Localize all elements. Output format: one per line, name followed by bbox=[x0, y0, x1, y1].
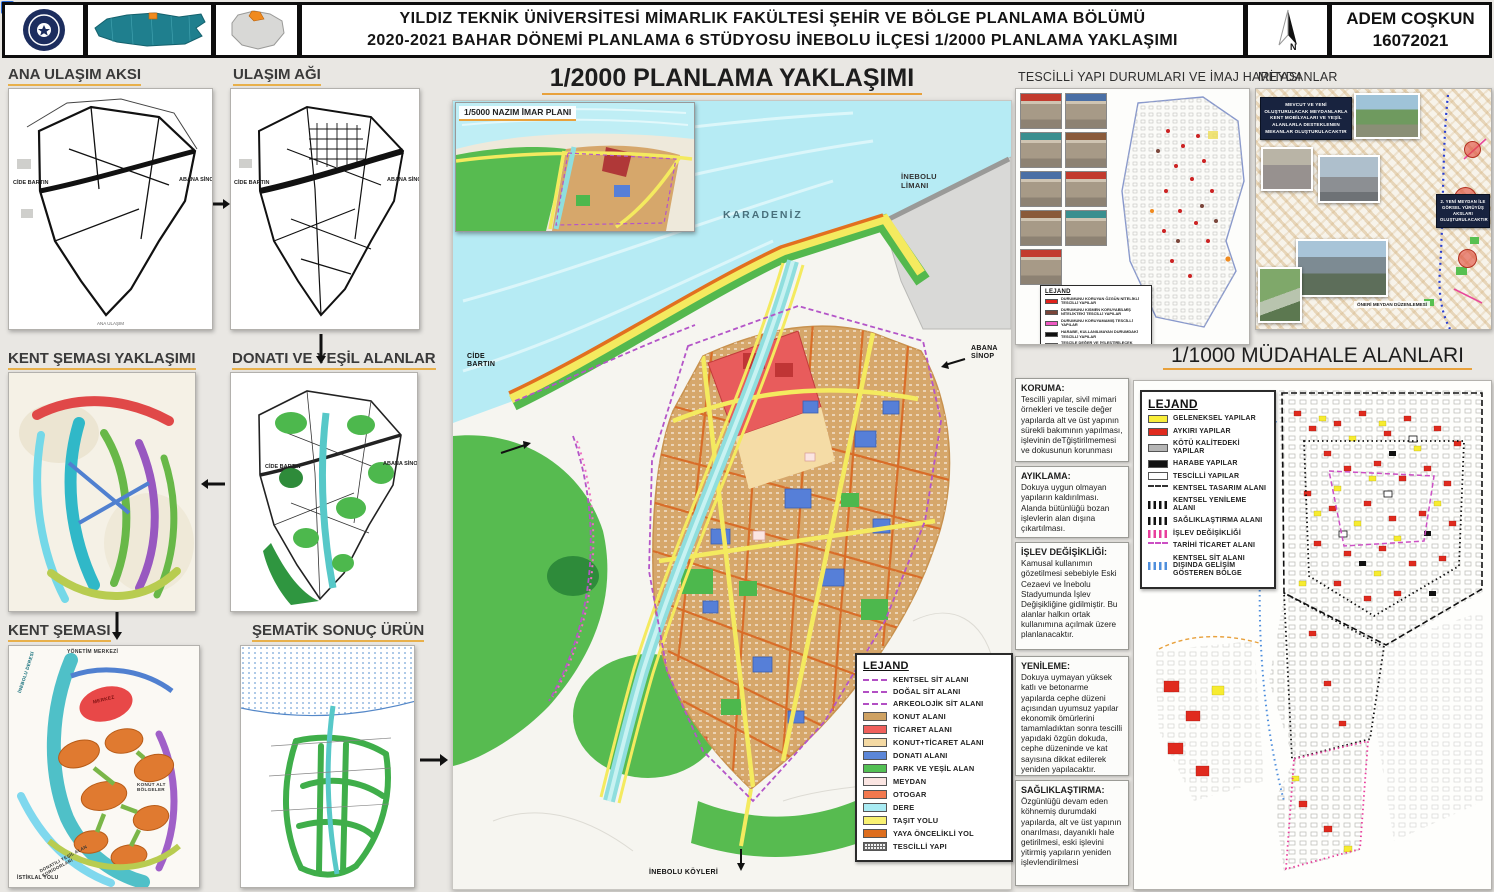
tescilli-photo bbox=[1065, 93, 1107, 129]
svg-text:CİDE BARTIN: CİDE BARTIN bbox=[265, 463, 300, 470]
mudahale-legend: LEJAND GELENEKSEL YAPILAR AYKIRI YAPILAR… bbox=[1140, 390, 1276, 589]
kent-semasi-note: YÖNETİM MERKEZİ bbox=[67, 650, 118, 656]
legend-swatch bbox=[1045, 310, 1058, 315]
legend-swatch bbox=[863, 829, 887, 838]
ana-ulasim-map-image: CİDE BARTIN ABANA SİNOP ANA ULAŞIM bbox=[9, 89, 213, 330]
tescilli-photo bbox=[1065, 210, 1107, 246]
legend-item: TAŞIT YOLU bbox=[863, 816, 1005, 825]
legend-item: KONUT+TİCARET ALANI bbox=[863, 738, 1005, 747]
legend-swatch bbox=[1148, 542, 1168, 550]
inset-map: 1/5000 NAZIM İMAR PLANI bbox=[455, 102, 695, 232]
legend-swatch bbox=[863, 777, 887, 786]
donati-yesil-map-image: CİDE BARTIN ABANA SİNOP bbox=[231, 373, 418, 612]
legend-item: GELENEKSEL YAPILAR bbox=[1148, 415, 1268, 423]
kent-semasi-note: İSTİKLAL YOLU bbox=[17, 876, 59, 882]
province-map-icon bbox=[224, 7, 290, 53]
legend-item: KENTSEL TASARIM ALANI bbox=[1148, 485, 1268, 493]
arrow-down-icon-2 bbox=[110, 612, 124, 642]
label-donati-ve-yesil: DONATI VE YEŞİL ALANLAR bbox=[232, 350, 436, 367]
west-label: CİDE BARTIN bbox=[467, 353, 501, 369]
panel-kent-semasi-yaklasimi bbox=[8, 372, 196, 612]
meydanlar-photo bbox=[1296, 239, 1388, 297]
label-sematik-sonuc: ŞEMATİK SONUÇ ÜRÜN bbox=[252, 622, 424, 639]
meydanlar-title: MEYDANLAR bbox=[1258, 70, 1338, 84]
legend-swatch bbox=[863, 703, 887, 705]
svg-text:ANA ULAŞIM: ANA ULAŞIM bbox=[97, 321, 124, 326]
legend-item: MEYDAN bbox=[863, 777, 1005, 786]
legend-title: LEJAND bbox=[863, 660, 1005, 672]
legend-swatch bbox=[863, 725, 887, 734]
legend-item: TESCİLE DEĞER VE İYİLEŞTİRİLECEK YAPILAR bbox=[1045, 341, 1147, 345]
kent-semasi-yaklasimi-image bbox=[9, 373, 196, 612]
legend-swatch bbox=[1148, 485, 1168, 493]
poster: YILDIZ TEKNİK ÜNİVERSİTESİ MİMARLIK FAKÜ… bbox=[0, 0, 1494, 892]
note-koruma: KORUMA:Tescilli yapılar, sivil mimari ör… bbox=[1015, 378, 1129, 462]
label-kent-semasi-yaklasimi: KENT ŞEMASI YAKLAŞIMI bbox=[8, 350, 196, 367]
legend-swatch bbox=[863, 691, 887, 693]
main-map-title: 1/2000 PLANLAMA YAKLAŞIMI bbox=[452, 64, 1012, 93]
note-ayiklama: AYIKLAMA:Dokuya uygun olmayan yapıların … bbox=[1015, 466, 1129, 538]
port-label: İNEBOLU LİMANI bbox=[901, 173, 953, 190]
svg-text:N: N bbox=[1290, 42, 1297, 52]
panel-sematik-sonuc bbox=[240, 645, 415, 888]
legend-swatch bbox=[863, 816, 887, 825]
legend-swatch bbox=[1148, 530, 1168, 538]
legend-item: DURUMUNU KORUYAN ÖZGÜN NİTELİKLİ TESCİLL… bbox=[1045, 297, 1147, 306]
ulasim-agi-map-image: CİDE BARTIN ABANA SİNOP bbox=[231, 89, 420, 330]
header-title-line2: 2020-2021 BAHAR DÖNEMİ PLANLAMA 6 STÜDYO… bbox=[367, 30, 1178, 52]
panel-ulasim-agi: CİDE BARTIN ABANA SİNOP bbox=[230, 88, 420, 330]
province-map-box bbox=[214, 2, 300, 58]
sea-label: KARADENİZ bbox=[723, 209, 803, 221]
north-arrow-icon: N bbox=[1271, 7, 1305, 53]
label-ana-ulasim-aksi: ANA ULAŞIM AKSI bbox=[8, 66, 141, 83]
legend-item: DOĞAL SİT ALANI bbox=[863, 688, 1005, 696]
tescilli-photo bbox=[1020, 171, 1062, 207]
legend-item: KÖTÜ KALİTEDEKİ YAPILAR bbox=[1148, 440, 1268, 455]
legend-swatch bbox=[1045, 343, 1058, 345]
legend-item: KENTSEL YENİLEME ALANI bbox=[1148, 497, 1268, 512]
meydanlar-note-top: MEVCUT VE YENİ OLUŞTURULACAK MEYDANLARLA… bbox=[1260, 97, 1352, 140]
legend-swatch bbox=[863, 803, 887, 812]
legend-swatch bbox=[1148, 428, 1168, 436]
legend-item: İŞLEV DEĞİŞİKLİĞİ bbox=[1148, 530, 1268, 538]
kent-semasi-image bbox=[9, 646, 200, 888]
south-label: İNEBOLU KÖYLERİ bbox=[649, 869, 718, 877]
header: YILDIZ TEKNİK ÜNİVERSİTESİ MİMARLIK FAKÜ… bbox=[2, 2, 1492, 58]
arrow-right-icon-2 bbox=[420, 752, 450, 768]
label-ulasim-agi: ULAŞIM AĞI bbox=[233, 66, 321, 83]
meydan-circle bbox=[1458, 249, 1477, 268]
legend-item: YAYA ÖNCELİKLİ YOL bbox=[863, 829, 1005, 838]
legend-swatch bbox=[1148, 501, 1168, 509]
legend-swatch bbox=[863, 712, 887, 721]
main-map-legend: LEJAND KENTSEL SİT ALANI DOĞAL SİT ALANI… bbox=[855, 653, 1013, 862]
inset-title: 1/5000 NAZIM İMAR PLANI bbox=[459, 106, 576, 121]
label-kent-semasi: KENT ŞEMASI bbox=[8, 622, 111, 639]
legend-item: SAĞLIKLAŞTIRMA ALANI bbox=[1148, 517, 1268, 525]
panel-tescilli: LEJAND DURUMUNU KORUYAN ÖZGÜN NİTELİKLİ … bbox=[1015, 88, 1250, 345]
meydanlar-caption: ÖNERİ MEYDAN DÜZENLEMESİ bbox=[1354, 301, 1430, 308]
legend-item: HARABE YAPILAR bbox=[1148, 460, 1268, 468]
legend-swatch bbox=[863, 751, 887, 760]
legend-swatch bbox=[863, 738, 887, 747]
svg-text:ABANA SİNOP: ABANA SİNOP bbox=[383, 460, 418, 467]
legend-swatch bbox=[1045, 321, 1058, 326]
mudahale-title: 1/1000 MÜDAHALE ALANLARI bbox=[1145, 344, 1490, 368]
legend-item: KENTSEL SİT ALANI DIŞINDA GELİŞİM GÖSTER… bbox=[1148, 555, 1268, 578]
meydanlar-note-right: 2. YENİ MEYDAN İLE GÖRSEL YÜRÜYÜŞ AKSLAR… bbox=[1436, 194, 1490, 228]
legend-item: KONUT ALANI bbox=[863, 712, 1005, 721]
ytu-logo-icon bbox=[21, 7, 67, 53]
arrow-down-icon bbox=[314, 334, 328, 366]
legend-item: DURUMUNU KORUYAMAMIŞ TESCİLLİ YAPILAR bbox=[1045, 319, 1147, 328]
legend-item: HARABE, KULLANILMAYAN DURUMDAKİ TESCİLLİ… bbox=[1045, 330, 1147, 339]
meydanlar-photo bbox=[1354, 93, 1420, 139]
legend-item: OTOGAR bbox=[863, 790, 1005, 799]
tescilli-photo bbox=[1020, 210, 1062, 246]
svg-text:ABANA SİNOP: ABANA SİNOP bbox=[387, 176, 420, 183]
tescilli-legend: LEJAND DURUMUNU KORUYAN ÖZGÜN NİTELİKLİ … bbox=[1040, 285, 1152, 345]
meydanlar-photo bbox=[1258, 267, 1302, 323]
turkey-map-box bbox=[86, 2, 214, 58]
panel-mudahale-map: LEJAND GELENEKSEL YAPILAR AYKIRI YAPILAR… bbox=[1133, 380, 1492, 890]
legend-swatch bbox=[863, 679, 887, 681]
north-box: N bbox=[1246, 2, 1330, 58]
header-title-line1: YILDIZ TEKNİK ÜNİVERSİTESİ MİMARLIK FAKÜ… bbox=[400, 8, 1146, 30]
legend-swatch bbox=[1148, 472, 1168, 480]
legend-item: DURUMUNU KISMEN KORUYABİLMİŞ NİTELİKTEKİ… bbox=[1045, 308, 1147, 317]
meydan-circle bbox=[1464, 141, 1481, 158]
meydanlar-photo bbox=[1318, 155, 1380, 203]
tescilli-photo bbox=[1020, 132, 1062, 168]
legend-item: ARKEOLOJİK SİT ALANI bbox=[863, 700, 1005, 708]
header-title: YILDIZ TEKNİK ÜNİVERSİTESİ MİMARLIK FAKÜ… bbox=[300, 2, 1246, 58]
arrow-left-icon bbox=[199, 477, 227, 491]
legend-item: TESCİLLİ YAPILAR bbox=[1148, 472, 1268, 480]
author-box: ADEM COŞKUN 16072021 bbox=[1330, 2, 1492, 58]
east-label: ABANA SİNOP bbox=[971, 345, 1005, 361]
legend-swatch bbox=[1148, 562, 1168, 570]
author-name: ADEM COŞKUN bbox=[1346, 8, 1474, 30]
tescilli-photo bbox=[1020, 93, 1062, 129]
legend-item: TARİHİ TİCARET ALANI bbox=[1148, 542, 1268, 550]
legend-item: TESCİLLİ YAPI bbox=[863, 842, 1005, 851]
legend-item: TİCARET ALANI bbox=[863, 725, 1005, 734]
legend-swatch bbox=[863, 842, 887, 851]
tescilli-photo bbox=[1020, 249, 1062, 285]
legend-item: AYKIRI YAPILAR bbox=[1148, 428, 1268, 436]
legend-item: PARK VE YEŞİL ALAN bbox=[863, 764, 1005, 773]
legend-item: DONATI ALANI bbox=[863, 751, 1005, 760]
note-yenileme: YENİLEME:Dokuya uymayan yüksek katlı ve … bbox=[1015, 656, 1129, 776]
panel-donati-yesil: CİDE BARTIN ABANA SİNOP bbox=[230, 372, 418, 612]
svg-text:CİDE BARTIN: CİDE BARTIN bbox=[234, 179, 269, 186]
kent-semasi-note: KONUT ALT BÖLGELER bbox=[137, 782, 181, 793]
legend-item: KENTSEL SİT ALANI bbox=[863, 676, 1005, 684]
university-logo-box bbox=[2, 2, 86, 58]
legend-swatch bbox=[863, 764, 887, 773]
meydanlar-photo bbox=[1261, 147, 1313, 191]
panel-meydanlar: MEVCUT VE YENİ OLUŞTURULACAK MEYDANLARLA… bbox=[1255, 88, 1492, 330]
legend-swatch bbox=[1148, 517, 1168, 525]
arrow-right-icon bbox=[213, 197, 231, 211]
note-islev-degisikligi: İŞLEV DEĞİŞİKLİĞİ:Kamusal kullanımın göz… bbox=[1015, 542, 1129, 650]
svg-text:CİDE BARTIN: CİDE BARTIN bbox=[13, 179, 48, 186]
legend-swatch bbox=[1148, 444, 1168, 452]
tescilli-photo bbox=[1065, 171, 1107, 207]
legend-item: DERE bbox=[863, 803, 1005, 812]
legend-swatch bbox=[1148, 460, 1168, 468]
panel-kent-semasi: YÖNETİM MERKEZİ İNEBOLU DERESİ MERKEZ KO… bbox=[8, 645, 200, 888]
panel-ana-ulasim-aksi: CİDE BARTIN ABANA SİNOP ANA ULAŞIM bbox=[8, 88, 213, 330]
legend-swatch bbox=[863, 790, 887, 799]
legend-swatch bbox=[1045, 332, 1058, 337]
turkey-map-icon bbox=[91, 8, 209, 52]
inset-map-image bbox=[456, 103, 694, 231]
note-sagliklastirma: SAĞLIKLAŞTIRMA:Özgünlüğü devam eden köhn… bbox=[1015, 780, 1129, 886]
author-number: 16072021 bbox=[1373, 30, 1449, 52]
tescilli-photo bbox=[1065, 132, 1107, 168]
sematik-sonuc-image bbox=[241, 646, 415, 888]
legend-swatch bbox=[1045, 299, 1058, 304]
svg-text:ABANA SİNOP: ABANA SİNOP bbox=[179, 176, 213, 183]
legend-swatch bbox=[1148, 415, 1168, 423]
